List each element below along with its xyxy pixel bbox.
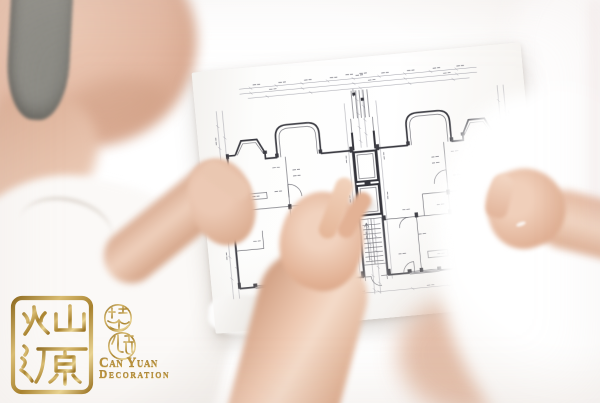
medallion-char-bottom bbox=[112, 335, 134, 354]
right-edge-tint bbox=[586, 0, 600, 220]
photo-scene: Can Yuan Decoration bbox=[0, 0, 600, 403]
seal-char-top bbox=[24, 306, 84, 334]
seal-char-bottom bbox=[21, 346, 86, 384]
brand-seal-graphics bbox=[6, 290, 156, 398]
brand-watermark: Can Yuan Decoration bbox=[6, 290, 206, 403]
brand-name: Can Yuan bbox=[99, 356, 209, 370]
medallion-char-top bbox=[108, 306, 129, 330]
brand-text: Can Yuan Decoration bbox=[99, 356, 209, 381]
brand-subtitle: Decoration bbox=[99, 370, 209, 382]
